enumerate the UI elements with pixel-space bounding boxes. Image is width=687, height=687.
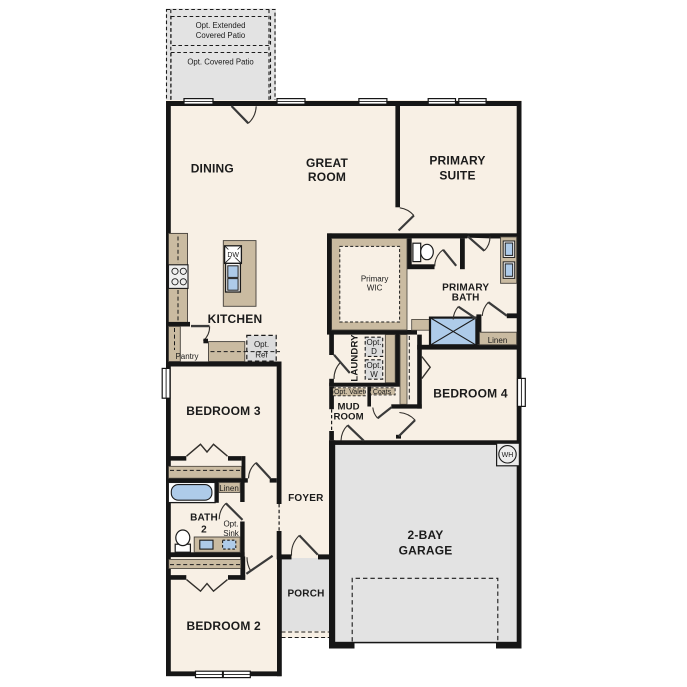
svg-text:Opt.: Opt. (223, 520, 238, 529)
svg-text:Pantry: Pantry (175, 352, 198, 361)
svg-text:SUITE: SUITE (439, 169, 475, 183)
svg-text:Linen: Linen (488, 336, 508, 345)
svg-text:WH: WH (502, 452, 514, 459)
svg-text:KITCHEN: KITCHEN (208, 312, 263, 326)
svg-text:Opt. Covered Patio: Opt. Covered Patio (187, 58, 254, 67)
svg-text:BATH: BATH (190, 513, 218, 524)
svg-text:PORCH: PORCH (287, 589, 324, 600)
svg-text:DINING: DINING (191, 162, 234, 176)
svg-text:Opt.: Opt. (366, 361, 381, 370)
svg-text:LAUNDRY: LAUNDRY (350, 334, 361, 382)
svg-text:GREAT: GREAT (306, 156, 349, 170)
svg-text:Linen: Linen (219, 484, 239, 493)
svg-text:DW: DW (227, 252, 239, 259)
svg-text:BEDROOM 2: BEDROOM 2 (186, 619, 261, 633)
svg-text:GARAGE: GARAGE (399, 544, 453, 558)
svg-text:Coats: Coats (373, 389, 392, 396)
svg-text:Covered Patio: Covered Patio (196, 31, 246, 40)
svg-text:WIC: WIC (367, 284, 383, 293)
svg-text:BEDROOM 3: BEDROOM 3 (186, 404, 261, 418)
svg-text:BATH: BATH (452, 292, 480, 303)
svg-text:D: D (371, 347, 377, 356)
svg-text:FOYER: FOYER (288, 493, 324, 504)
svg-text:Sink: Sink (223, 529, 240, 538)
svg-text:BEDROOM 4: BEDROOM 4 (433, 387, 508, 401)
svg-text:2-BAY: 2-BAY (408, 528, 444, 542)
svg-text:W: W (370, 370, 378, 379)
svg-text:Primary: Primary (361, 275, 389, 284)
svg-text:Opt.: Opt. (254, 340, 269, 349)
svg-text:Opt.: Opt. (366, 338, 381, 347)
svg-text:ROOM: ROOM (308, 170, 346, 184)
svg-text:Opt. Extended: Opt. Extended (196, 21, 246, 30)
svg-text:ROOM: ROOM (333, 412, 363, 423)
svg-text:2: 2 (201, 525, 207, 536)
svg-text:Ref: Ref (255, 351, 268, 360)
svg-text:PRIMARY: PRIMARY (429, 154, 485, 168)
svg-text:Opt. Valet: Opt. Valet (334, 389, 365, 396)
